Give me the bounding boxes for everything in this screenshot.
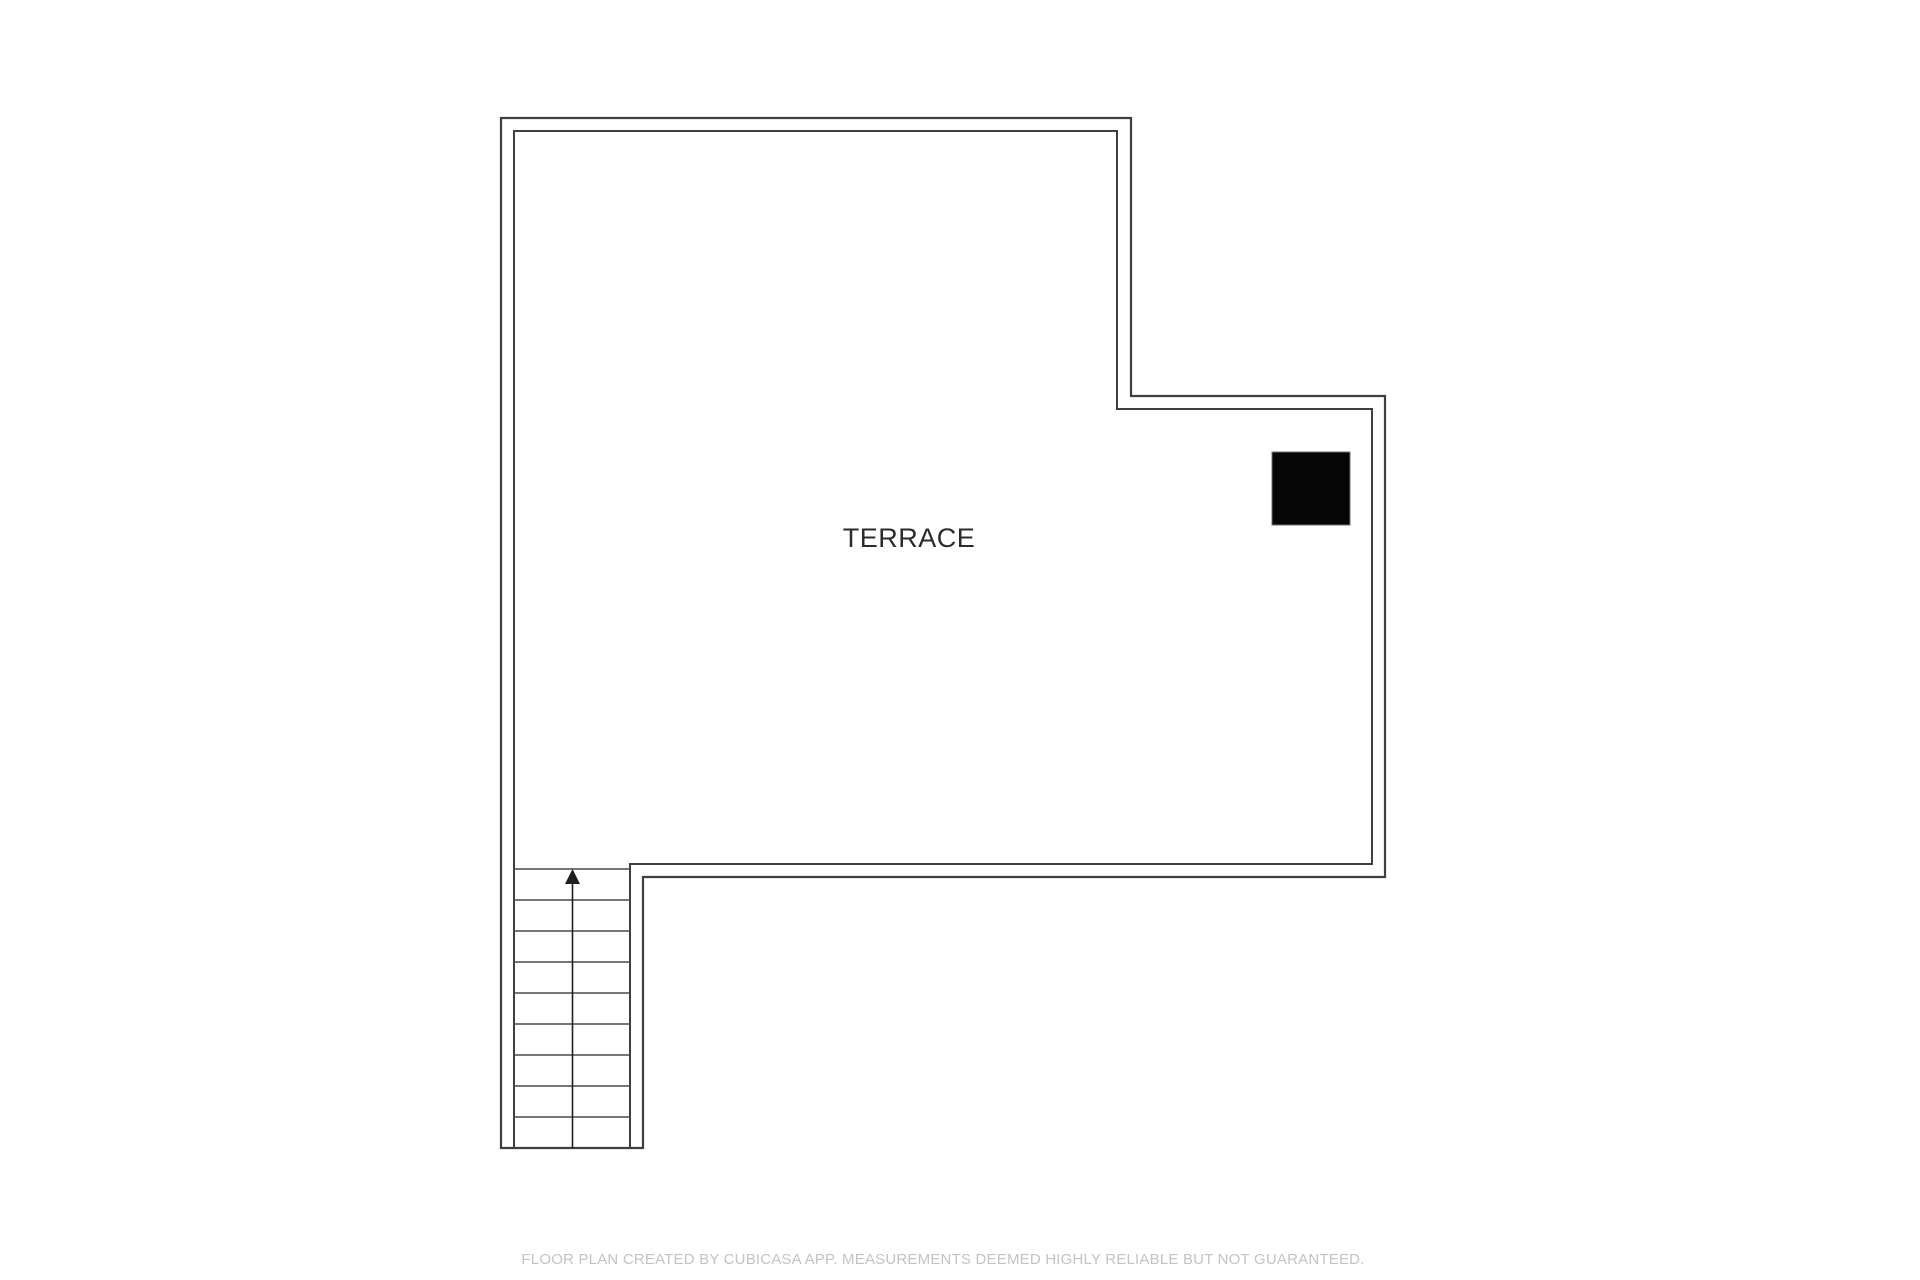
chimney-fixture [1272, 452, 1350, 525]
floor-plan-drawing: TERRACE [0, 0, 1920, 1280]
floor-plan-page: TERRACE FLOOR PLAN CREATED BY CUBICASA A… [0, 0, 1920, 1280]
terrace-outer-wall [501, 118, 1385, 1148]
disclaimer-footer: FLOOR PLAN CREATED BY CUBICASA APP. MEAS… [0, 1251, 1886, 1268]
room-label-terrace: TERRACE [843, 523, 976, 553]
